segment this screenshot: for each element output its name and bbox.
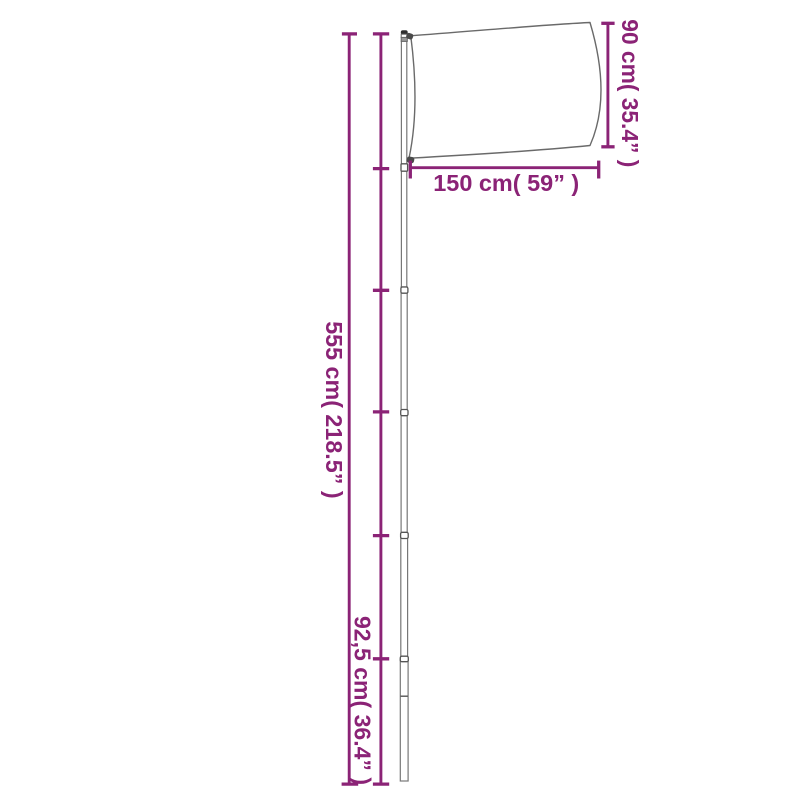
svg-text:90 cm( 35.4” ): 90 cm( 35.4” ) <box>617 19 643 167</box>
svg-text:92,5 cm( 36.4” ): 92,5 cm( 36.4” ) <box>350 616 376 785</box>
svg-text:150 cm( 59” ): 150 cm( 59” ) <box>433 170 579 196</box>
svg-text:555 cm( 218.5” ): 555 cm( 218.5” ) <box>321 321 347 498</box>
